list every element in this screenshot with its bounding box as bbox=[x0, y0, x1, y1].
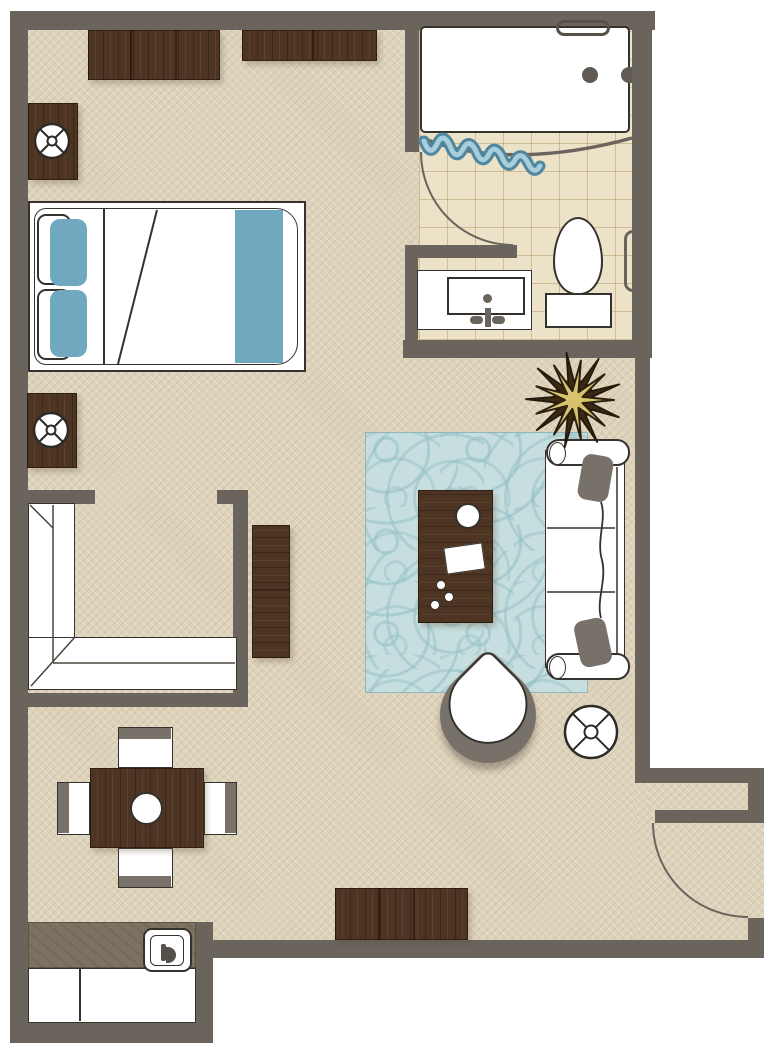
pillow-blue-top bbox=[50, 219, 87, 286]
table-centerpiece bbox=[130, 792, 163, 825]
wall-left bbox=[10, 11, 28, 1043]
wall-entry-top bbox=[635, 768, 764, 783]
wall-bath-bottom bbox=[403, 340, 652, 358]
console-panel-line bbox=[378, 888, 380, 940]
wall-bath-right bbox=[632, 11, 652, 358]
vanity-drain-dot bbox=[483, 294, 492, 303]
dining-chair-top bbox=[118, 727, 173, 768]
wall-bottom bbox=[202, 940, 764, 958]
coffee-table-tray bbox=[455, 503, 481, 529]
vanity-handle-left bbox=[470, 316, 483, 324]
dining-chair-left bbox=[57, 782, 90, 835]
dresser-panel-line bbox=[130, 30, 132, 80]
wall-entry-stub bbox=[655, 810, 760, 823]
vanity-faucet-stem bbox=[485, 308, 491, 327]
decor-dot bbox=[430, 600, 440, 610]
wardrobe-bottom-section bbox=[28, 637, 237, 690]
kitchen-cabinets bbox=[28, 968, 196, 1023]
bathtub bbox=[420, 26, 630, 133]
nightstand-upper bbox=[28, 103, 78, 180]
chair-back-band bbox=[58, 783, 69, 833]
dining-chair-bottom bbox=[118, 848, 173, 888]
decor-dot bbox=[436, 580, 446, 590]
wall-closet-bottom bbox=[25, 693, 248, 707]
decor-dot bbox=[444, 592, 454, 602]
wall-kitchen-bottom bbox=[10, 1023, 213, 1043]
toilet-tank bbox=[545, 293, 612, 328]
wall-living-right bbox=[635, 358, 650, 783]
dresser-panel-line bbox=[312, 30, 314, 61]
nightstand-lower bbox=[27, 393, 77, 468]
console-panel-line bbox=[252, 589, 290, 591]
tub-drain bbox=[582, 67, 598, 83]
entry-niche bbox=[648, 783, 760, 810]
chair-back-band bbox=[225, 783, 236, 833]
sofa-arm-cap-bottom bbox=[549, 656, 566, 679]
tub-grab-handle bbox=[556, 20, 610, 36]
entry-console-bench bbox=[335, 888, 468, 940]
towel-bar bbox=[624, 230, 639, 292]
sofa-arm-cap-top bbox=[549, 442, 566, 465]
dresser-top-right bbox=[242, 30, 377, 61]
chair-back-band bbox=[119, 728, 171, 739]
cabinet-divider bbox=[79, 969, 81, 1021]
console-panel-line bbox=[413, 888, 415, 940]
chair-back-band bbox=[119, 876, 171, 887]
dresser-top-left bbox=[88, 30, 220, 80]
wall-bath-divider-upper bbox=[405, 30, 419, 152]
doorway-floor bbox=[748, 823, 764, 918]
floor-plan bbox=[0, 0, 768, 1050]
dining-chair-right bbox=[204, 782, 237, 835]
wall-bath-stub bbox=[405, 245, 517, 258]
wall-closet-stub-left bbox=[25, 490, 95, 504]
bed-runner bbox=[235, 210, 283, 363]
magazine bbox=[443, 542, 485, 574]
vanity-handle-right bbox=[492, 316, 505, 324]
tub-faucet bbox=[621, 67, 632, 83]
pillow-blue-bottom bbox=[50, 290, 87, 357]
dresser-panel-line bbox=[175, 30, 177, 80]
tv-console bbox=[252, 525, 290, 658]
